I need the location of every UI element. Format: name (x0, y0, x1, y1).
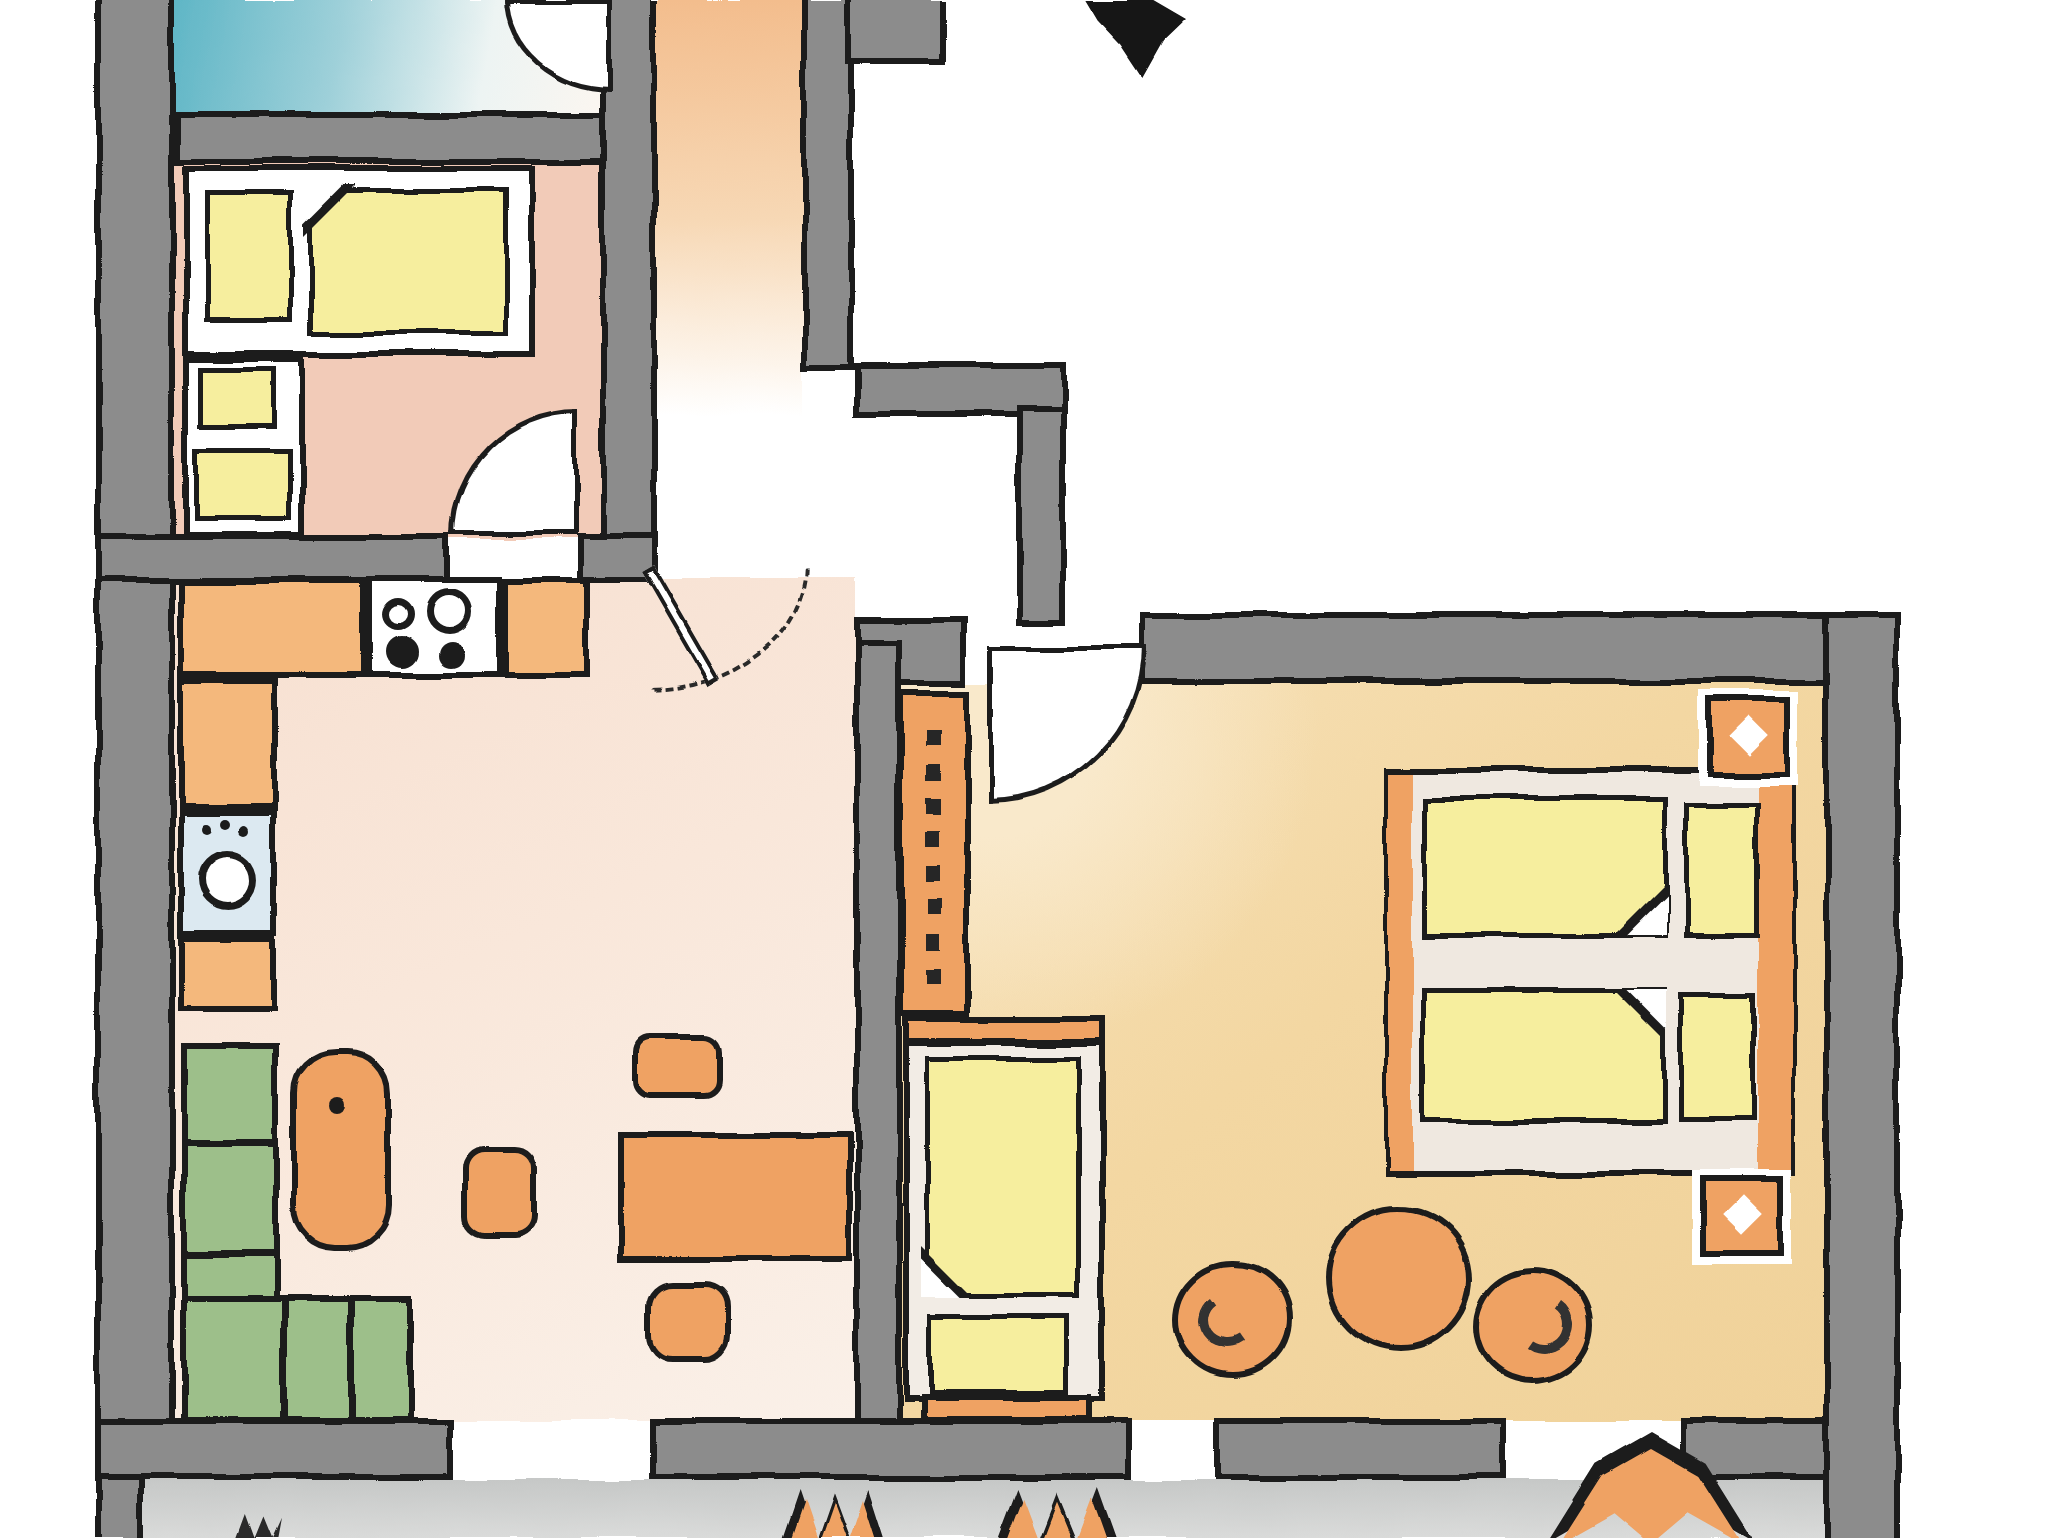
washing-machine-drum (198, 850, 258, 910)
top-edge-ink-blob (1082, 0, 1186, 78)
wall-living-bedroom2-divider (854, 640, 902, 1430)
wall-corridor-step (845, 0, 945, 64)
double-bed-fold-bottom (1614, 990, 1666, 1042)
bedroom1-mattress-fold (304, 184, 356, 236)
wall-blueroom-bottom (175, 112, 657, 164)
washer-knob-3 (240, 826, 250, 836)
sofa-seam-4 (347, 1302, 354, 1417)
kitchen-counter-left-2 (178, 936, 276, 1012)
single-bed-fold (921, 1246, 973, 1298)
dining-table (618, 1132, 852, 1262)
wardrobe-hook-marks (926, 712, 940, 994)
dining-chair-bottom (646, 1282, 730, 1362)
double-bed-pillow-bottom (1678, 992, 1756, 1122)
bedroom1-small-bench (194, 448, 292, 520)
sideboard-knob (329, 1098, 345, 1114)
balcony-plant-small-2 (1005, 1498, 1107, 1538)
bedroom1-pillow (205, 190, 293, 322)
balcony-plant-small-1 (790, 1500, 878, 1538)
floorplan-canvas (0, 0, 2048, 1538)
double-bed-headboard-right (1758, 774, 1792, 1170)
wall-bottom-c (1214, 1418, 1506, 1480)
wall-left-outer (95, 0, 175, 1432)
stove-burner-filled-right (438, 642, 464, 668)
washer-knob-2 (221, 820, 231, 830)
wall-bedroom2-top-b (1138, 612, 1838, 684)
sofa-seam-3 (281, 1302, 288, 1417)
stove-burner-filled-left (386, 636, 418, 668)
wall-bottom-a (95, 1418, 453, 1480)
stove-burner-small-outline (382, 598, 414, 630)
dining-chair-top (633, 1034, 721, 1098)
wall-bottom-b (650, 1418, 1132, 1480)
bedroom1-side-block (198, 368, 276, 430)
double-bed-fold-top (1614, 884, 1666, 936)
wall-right-outer (1824, 612, 1900, 1538)
double-bed-pillow-top (1684, 802, 1760, 938)
corridor-floor (657, 0, 803, 578)
double-bed-rail-left (1388, 774, 1412, 1170)
sofa-horizontal (181, 1296, 413, 1423)
round-table (1326, 1206, 1472, 1352)
sofa-seam-2 (186, 1250, 274, 1257)
dining-chair-left (462, 1146, 536, 1238)
sideboard (291, 1050, 391, 1250)
kitchen-counter-left-1 (178, 678, 278, 810)
kitchen-counter-top-2 (502, 578, 590, 678)
kitchen-counter-top-1 (178, 578, 366, 678)
washer-knob-1 (202, 824, 212, 834)
stove-burner-large (426, 588, 472, 634)
wall-jog-vertical (1016, 405, 1066, 625)
single-bed-pillow (928, 1314, 1068, 1394)
sofa-seam-1 (186, 1140, 274, 1147)
single-bed-footboard (920, 1394, 1092, 1422)
